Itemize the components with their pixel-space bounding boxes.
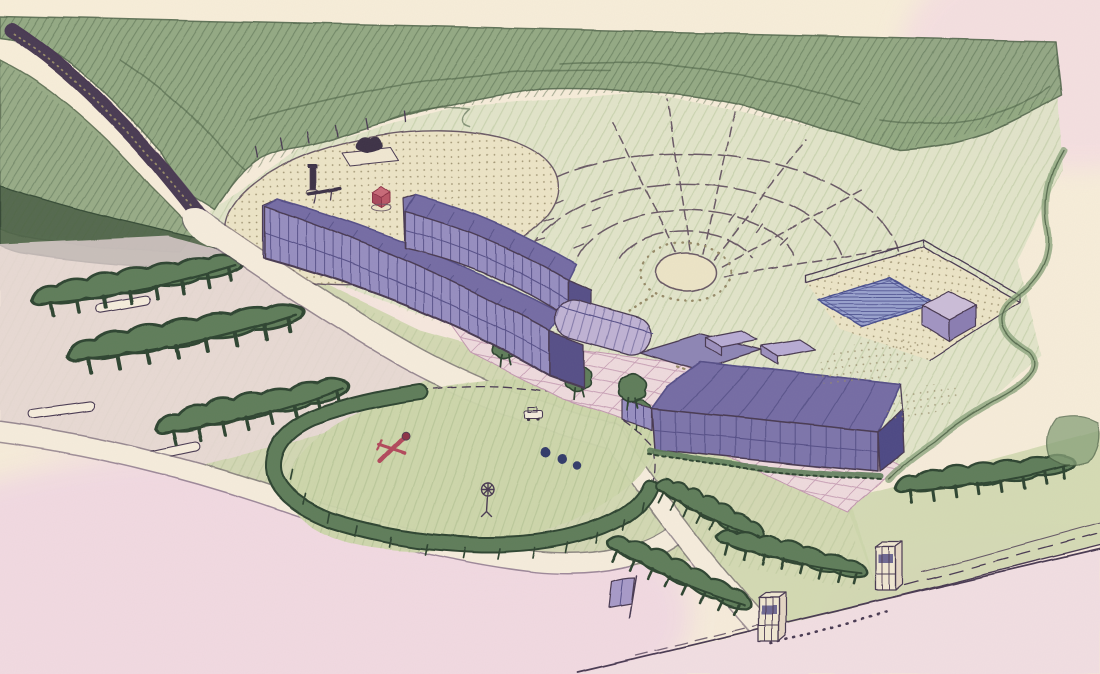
gate-tower-west [758,593,785,642]
site-rendering-page [0,0,1100,674]
right-edge-grove [1047,416,1099,465]
gate-tower-east [876,541,903,590]
site-rendering-canvas [0,0,1100,674]
meadow-focal-circle [656,253,716,291]
